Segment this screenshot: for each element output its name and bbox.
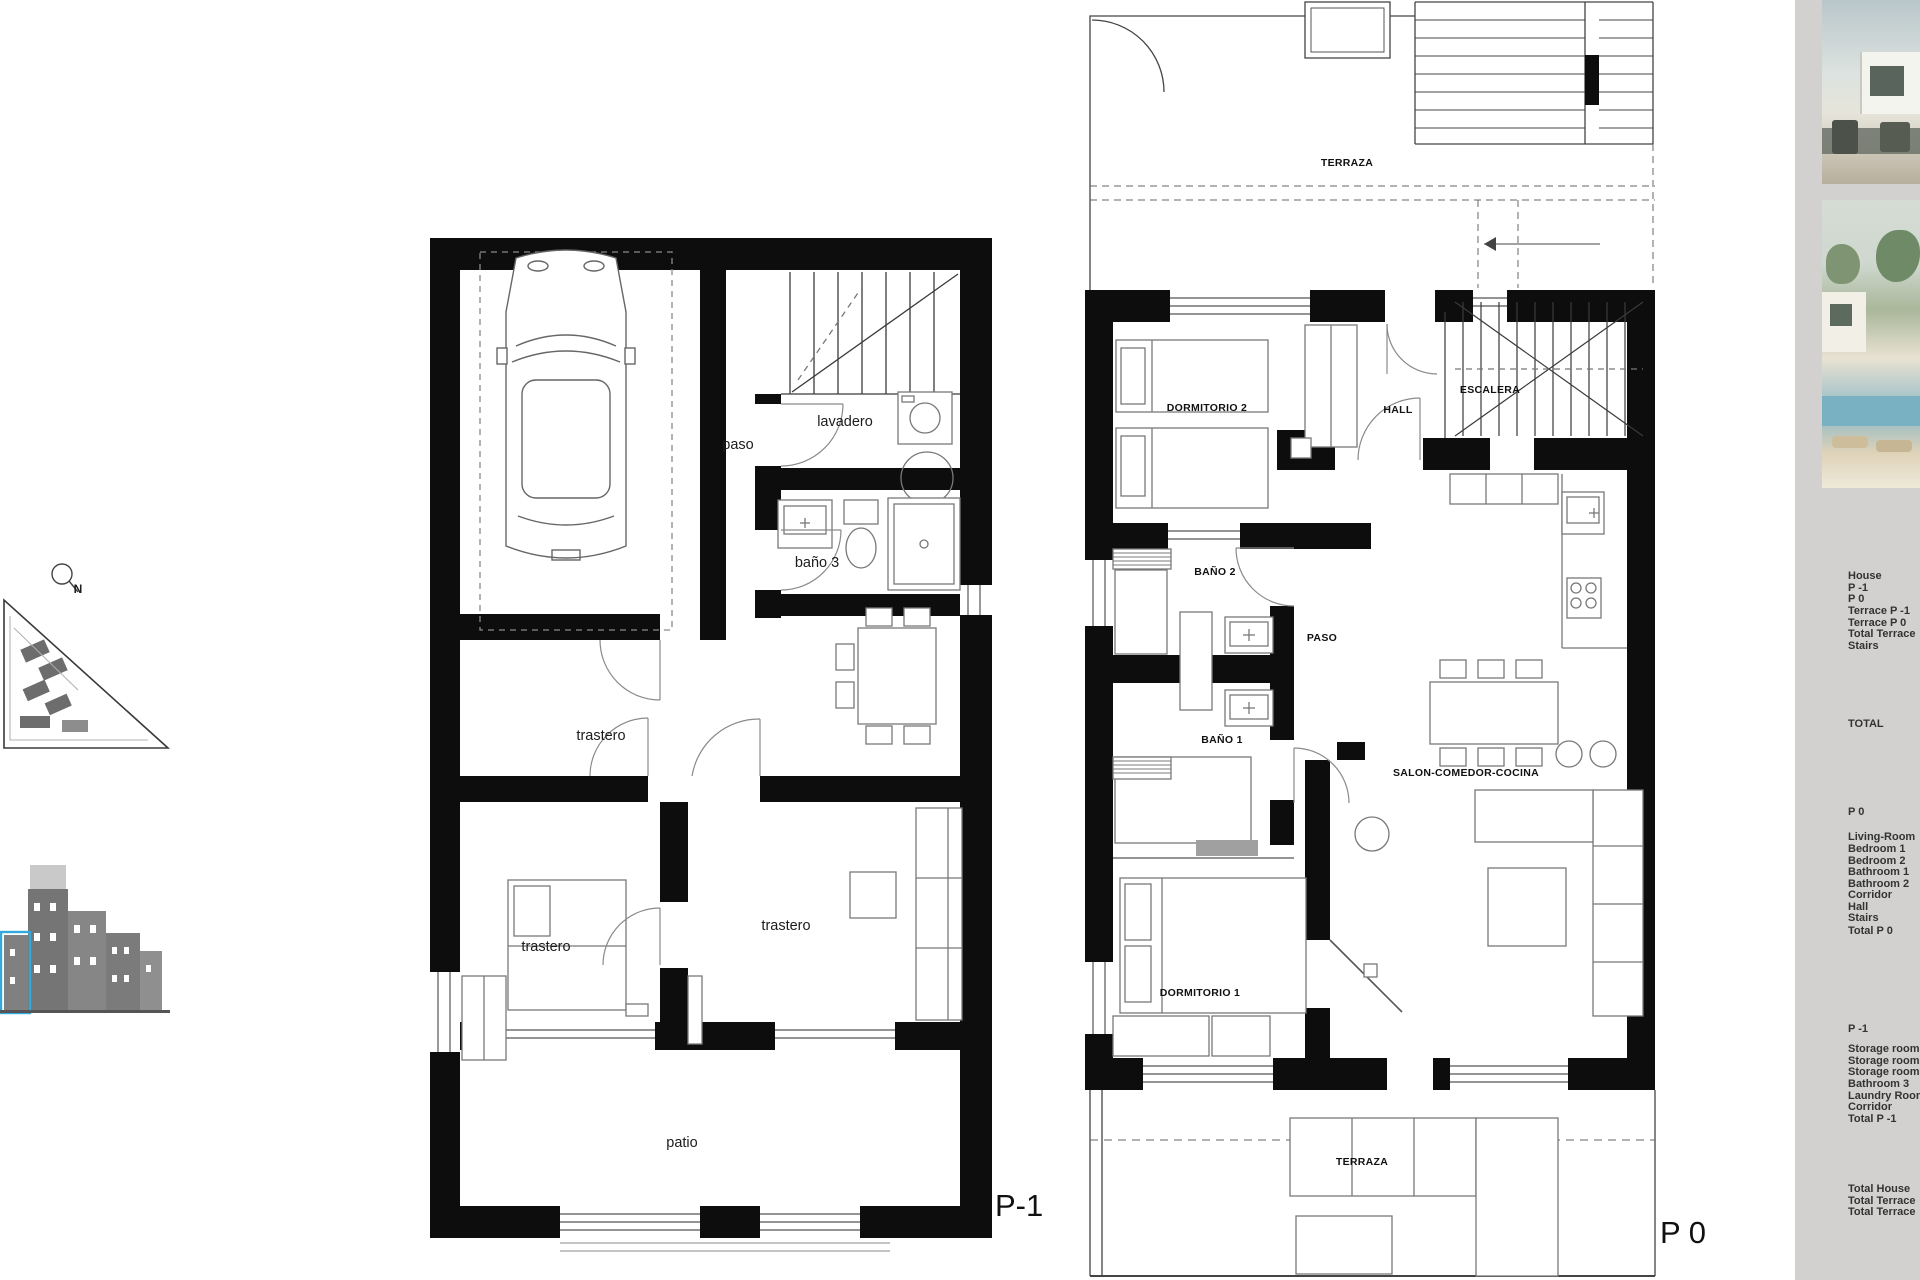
photo-house-exterior — [1822, 0, 1920, 184]
site-triangle — [4, 600, 168, 748]
area-row: Total House — [1848, 1183, 1910, 1195]
room-label-trastero-mid: trastero — [576, 728, 625, 744]
kitchen-fixtures — [1450, 474, 1627, 648]
room-label-patio: patio — [666, 1135, 697, 1151]
room-label-bano1: BAÑO 1 — [1201, 734, 1242, 746]
area-row: Corridor — [1848, 1101, 1892, 1113]
photo-lounger — [1832, 436, 1868, 448]
photo-lounger — [1876, 440, 1912, 452]
area-section-title: P -1 — [1848, 1023, 1868, 1035]
area-row: Stairs — [1848, 912, 1879, 924]
compass-north-label: N — [74, 582, 83, 596]
area-row: Corridor — [1848, 889, 1892, 901]
room-label-bano3: baño 3 — [795, 555, 839, 571]
photo-chair — [1832, 120, 1858, 154]
floorplan-sheet: House P -1 P 0 Terrace P -1 Terrace P 0 … — [0, 0, 1920, 1280]
area-row: Stairs — [1848, 640, 1879, 652]
room-label-bano2: BAÑO 2 — [1194, 566, 1235, 578]
photo-pool-terrace — [1822, 200, 1920, 488]
plan-p1-footing — [560, 1243, 890, 1251]
terrace-top-outline — [1090, 2, 1655, 290]
room-label-paso-p0: PASO — [1307, 632, 1337, 644]
photo-pool — [1822, 396, 1920, 426]
dining-set-p0 — [1430, 660, 1616, 767]
room-label-trastero-left: trastero — [521, 939, 570, 955]
area-row: Total P 0 — [1848, 925, 1893, 937]
photo-chair — [1880, 122, 1910, 152]
area-row: Terrace P -1 — [1848, 605, 1910, 617]
room-label-hall: HALL — [1383, 404, 1412, 416]
room-label-salon: SALON-COMEDOR-COCINA — [1393, 767, 1539, 779]
room-label-trastero-right: trastero — [761, 918, 810, 934]
plan-title-p1: P-1 — [995, 1188, 1043, 1224]
area-row: Total P -1 — [1848, 1113, 1897, 1125]
site-plan-key — [0, 558, 200, 778]
escalera-stairs — [1445, 302, 1643, 438]
area-row: Total Terrace — [1848, 628, 1915, 640]
area-row: Storage room — [1848, 1066, 1920, 1078]
bedroom1-furniture — [1113, 878, 1402, 1056]
building-elevation — [0, 845, 180, 1020]
living-furniture — [1355, 790, 1643, 1016]
dining-set-p1 — [836, 608, 936, 744]
area-row: Bathroom 1 — [1848, 866, 1909, 878]
area-section-title: P 0 — [1848, 806, 1864, 818]
room-label-dormitorio1: DORMITORIO 1 — [1160, 987, 1240, 999]
plan-p1-stairs — [781, 272, 960, 394]
room-label-lavadero: lavadero — [817, 414, 873, 430]
area-row: Living-Room — [1848, 831, 1915, 843]
bedroom2-furniture — [1116, 325, 1357, 508]
photo-villa-window — [1830, 304, 1852, 326]
car-top-view — [497, 250, 635, 560]
plan-p1 — [430, 230, 1070, 1260]
room-label-paso: paso — [722, 437, 753, 453]
bathroom3-fixtures — [778, 498, 960, 590]
plan-title-p0: P 0 — [1660, 1215, 1706, 1251]
plan-p0 — [1080, 0, 1680, 1280]
area-row: Bathroom 3 — [1848, 1078, 1909, 1090]
area-row: House — [1848, 570, 1882, 582]
room-label-terraza-top: TERRAZA — [1321, 157, 1373, 169]
bathroom-fixtures — [1113, 549, 1294, 858]
area-row: Bedroom 1 — [1848, 843, 1905, 855]
sofa-p1 — [850, 808, 962, 1020]
area-row: P 0 — [1848, 593, 1864, 605]
terrace-bottom — [1090, 1090, 1655, 1276]
room-label-dormitorio2: DORMITORIO 2 — [1167, 402, 1247, 414]
photo-palm — [1826, 244, 1860, 284]
area-row: Total Terrace — [1848, 1206, 1915, 1218]
photo-window — [1870, 66, 1904, 96]
room-label-terraza-bottom: TERRAZA — [1336, 1156, 1388, 1168]
room-label-escalera: ESCALERA — [1460, 384, 1520, 396]
area-row-total: TOTAL — [1848, 718, 1884, 730]
area-row: Storage room — [1848, 1043, 1920, 1055]
